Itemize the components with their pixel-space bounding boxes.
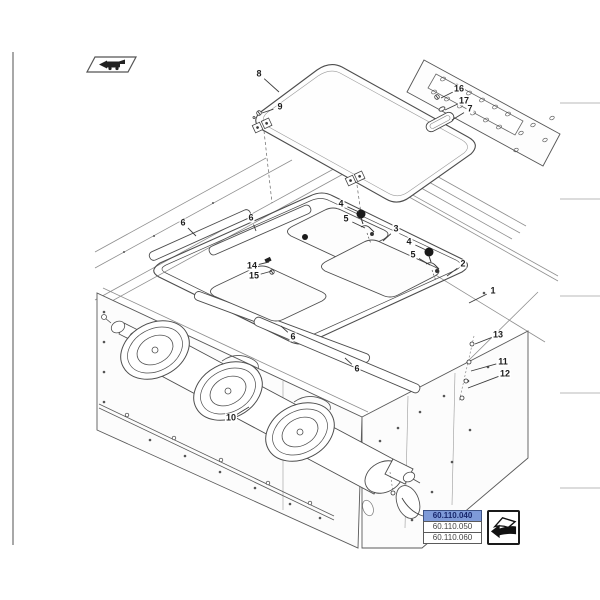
callout-9[interactable]: 9 xyxy=(276,103,283,112)
callout-11[interactable]: 11 xyxy=(497,358,509,367)
callout-10[interactable]: 10 xyxy=(225,414,237,423)
reference-page-list: 60.110.04060.110.05060.110.060 xyxy=(423,511,482,544)
callout-12[interactable]: 12 xyxy=(499,370,511,379)
callout-14[interactable]: 14 xyxy=(246,262,258,271)
callout-15[interactable]: 15 xyxy=(248,272,260,281)
callout-13[interactable]: 13 xyxy=(492,331,504,340)
page-turn-arrow-icon xyxy=(489,512,518,543)
callout-2[interactable]: 2 xyxy=(459,260,466,269)
callout-6[interactable]: 6 xyxy=(179,219,186,228)
callout-5[interactable]: 5 xyxy=(342,215,349,224)
callout-5[interactable]: 5 xyxy=(409,251,416,260)
reference-page-60.110.060[interactable]: 60.110.060 xyxy=(423,532,482,544)
callout-6[interactable]: 6 xyxy=(353,365,360,374)
callout-1[interactable]: 1 xyxy=(489,287,496,296)
callout-7[interactable]: 7 xyxy=(466,105,473,114)
page-turn-button[interactable] xyxy=(487,510,520,545)
callout-6[interactable]: 6 xyxy=(289,333,296,342)
callout-16[interactable]: 16 xyxy=(453,85,465,94)
callout-4[interactable]: 4 xyxy=(337,200,344,209)
parts-catalog-page: 891617766453452141511311126610 60.110.04… xyxy=(0,0,600,600)
callout-4[interactable]: 4 xyxy=(405,238,412,247)
callout-8[interactable]: 8 xyxy=(255,70,262,79)
callout-6[interactable]: 6 xyxy=(247,214,254,223)
callout-3[interactable]: 3 xyxy=(392,225,399,234)
